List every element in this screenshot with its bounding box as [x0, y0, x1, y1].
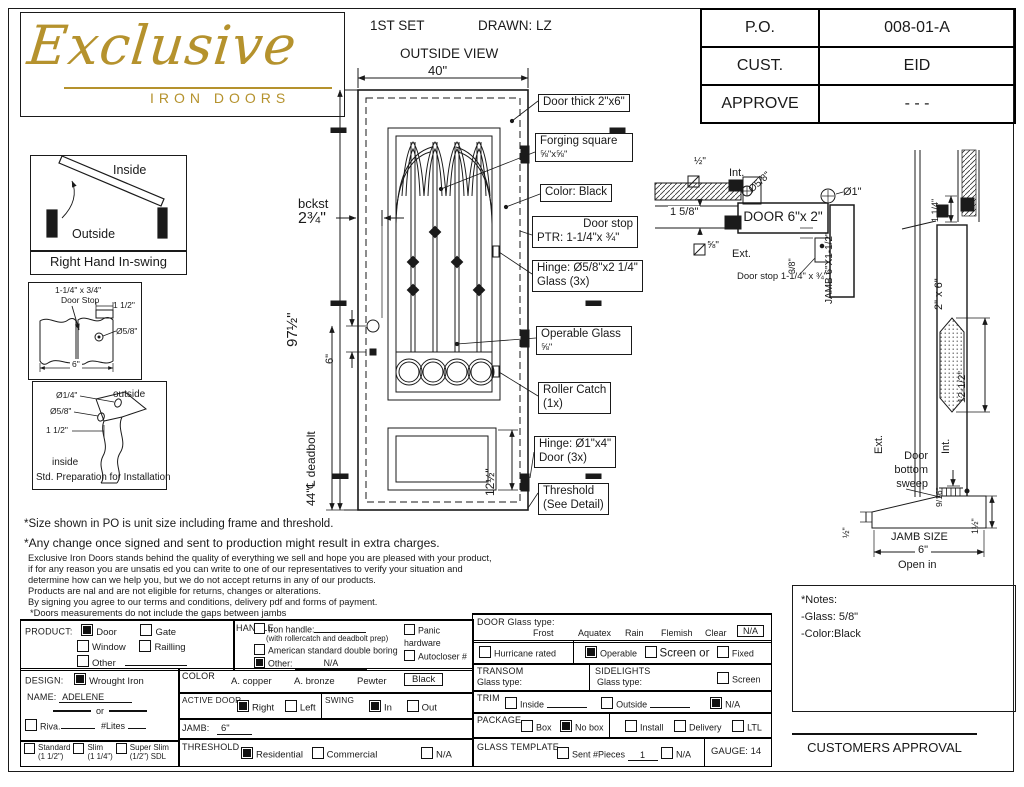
- package-delivery-label: Delivery: [689, 723, 722, 733]
- autocloser-label: Autocloser #: [418, 652, 467, 662]
- plan-five8-dim: ⅝": [707, 240, 719, 251]
- view-label: OUTSIDE VIEW: [400, 46, 498, 61]
- logo-underline: [64, 87, 332, 89]
- knob-gap-dim: 6": [324, 354, 336, 364]
- swing-caption: Right Hand In-swing: [30, 250, 187, 275]
- callout-color-text: Color: Black: [545, 186, 607, 198]
- slim-sub: (1 1/4"): [87, 752, 112, 761]
- panel-dim: 12½": [483, 468, 497, 496]
- trim-inside-label: Inside: [520, 700, 544, 710]
- design-cell: DESIGN: Wrought Iron NAME: ADELENE or Ri…: [20, 668, 180, 742]
- deadbolt-dim: 44"℄ deadbolt: [304, 431, 318, 506]
- product-railling-label: Railling: [154, 642, 185, 653]
- active-door-label: ACTIVE DOOR: [182, 695, 241, 705]
- screen-or-checkbox[interactable]: [645, 646, 657, 658]
- product-cell: PRODUCT: Door Gate Window Railling Other: [20, 619, 235, 671]
- vs-leaf-label: 2" x 6": [933, 278, 945, 310]
- super-slim-checkbox[interactable]: [116, 743, 127, 754]
- active-right-checkbox[interactable]: [237, 700, 249, 712]
- doorstop-callout-2: Door Stop: [61, 295, 99, 305]
- package-ltl-label: LTL: [747, 723, 762, 733]
- threshold-residential-label: Residential: [256, 750, 303, 761]
- cust-value: EID: [819, 47, 1015, 85]
- standard-label: Standard: [38, 743, 70, 752]
- lites-label: #Lites: [101, 721, 125, 731]
- backset-dim: 2¾": [298, 210, 326, 228]
- door-height-dim: 97½": [284, 312, 301, 347]
- active-left-checkbox[interactable]: [285, 700, 297, 712]
- product-gate-checkbox[interactable]: [140, 624, 152, 636]
- color-cell: COLOR A. copper A. bronze Pewter Black: [178, 668, 474, 694]
- sidelights-screen-checkbox[interactable]: [717, 672, 729, 684]
- design-name-label: NAME:: [27, 692, 57, 702]
- package-ltl-checkbox[interactable]: [732, 720, 744, 732]
- callout-threshold: Threshold (See Detail): [538, 483, 609, 515]
- callout-threshold-line1: Threshold: [543, 485, 604, 499]
- product-door-checkbox[interactable]: [81, 624, 93, 636]
- callout-forging-line1: Forging square: [540, 135, 628, 149]
- package-install-checkbox[interactable]: [625, 720, 637, 732]
- vs-sweep-line3: sweep: [858, 478, 928, 492]
- color-opt-bronze[interactable]: A. bronze: [294, 676, 335, 687]
- callout-roller: Roller Catch (1x): [538, 382, 611, 414]
- plan-wall-dim: 1 5/8": [668, 206, 700, 218]
- package-nobox-checkbox[interactable]: [560, 720, 572, 732]
- disclaimer-body-1: Exclusive Iron Doors stands behind the q…: [28, 553, 492, 563]
- or-divider-left: [53, 710, 91, 712]
- package-install-label: Install: [640, 723, 664, 733]
- product-other-checkbox[interactable]: [77, 655, 89, 667]
- package-box-checkbox[interactable]: [521, 720, 533, 732]
- callout-forging-line2: ⅝"x⅝": [540, 149, 628, 160]
- threshold-commercial-label: Commercial: [327, 750, 378, 761]
- swing-outside-label: Outside: [72, 227, 115, 241]
- riva-label: Riva.: [40, 721, 61, 731]
- trim-inside-blank[interactable]: [547, 699, 587, 708]
- callout-forging: Forging square ⅝"x⅝": [535, 133, 633, 162]
- transom-label: TRANSOM: [477, 666, 523, 676]
- callout-doorstop-line1: Door stop: [537, 218, 633, 232]
- trim-na-label: N/A: [725, 700, 740, 710]
- plan-int-label: Int.: [729, 167, 744, 179]
- autocloser-checkbox[interactable]: [404, 650, 415, 661]
- product-label: PRODUCT:: [25, 627, 73, 637]
- iron-handle-checkbox[interactable]: [254, 623, 265, 634]
- package-label: PACKAGE: [477, 715, 521, 725]
- package-cell: PACKAGE Box No box Install Delivery LTL: [472, 712, 772, 739]
- handle-other-checkbox[interactable]: [254, 657, 265, 668]
- callout-hinge-door-line2: Door (3x): [539, 452, 611, 466]
- plan-knob-dia: Ø1": [843, 186, 862, 198]
- panic-checkbox[interactable]: [404, 624, 415, 635]
- standard-checkbox[interactable]: [24, 743, 35, 754]
- disclaimer-line-2: *Any change once signed and sent to prod…: [24, 536, 440, 550]
- threshold-cell: THRESHOLD Residential Commercial N/A: [178, 738, 474, 767]
- approve-value: - - -: [819, 85, 1015, 123]
- iron-handle-label: Iron handle:: [268, 625, 314, 635]
- logo-script: Exclusive: [25, 14, 300, 77]
- trim-inside-checkbox[interactable]: [505, 697, 517, 709]
- american-boring-label: American standard double boring: [268, 645, 398, 655]
- jamb-value[interactable]: 6": [217, 723, 252, 735]
- package-delivery-checkbox[interactable]: [674, 720, 686, 732]
- swing-out-checkbox[interactable]: [407, 700, 419, 712]
- notes-glass: -Glass: 5/8": [801, 609, 1007, 626]
- trim-outside-label: Outside: [616, 700, 647, 710]
- trim-outside-checkbox[interactable]: [601, 697, 613, 709]
- disclaimer-line-1: *Size shown in PO is unit size including…: [24, 518, 333, 530]
- plan-jamb-label: JAMB 6"X1-1/2": [824, 232, 835, 304]
- design-wrought-label: Wrought Iron: [89, 676, 144, 687]
- template-sent-label: Sent #Pieces: [572, 750, 625, 760]
- trim-cell: TRIM Inside Outside N/A: [472, 690, 772, 714]
- callout-door-thick-text: Door thick 2"x6": [543, 96, 625, 108]
- callout-hinge-door: Hinge: Ø1"x4" Door (3x): [534, 436, 616, 468]
- package-box-label: Box: [536, 723, 552, 733]
- threshold-na-checkbox[interactable]: [421, 747, 433, 759]
- doorstop-base-dim: 6": [70, 359, 82, 369]
- template-na-checkbox[interactable]: [661, 747, 673, 759]
- color-opt-copper[interactable]: A. copper: [231, 676, 272, 687]
- product-door-label: Door: [96, 627, 117, 638]
- vs-sweep-dim: 9/16": [934, 487, 944, 507]
- vs-sweep-line2: bottom: [858, 464, 928, 478]
- notes-title: *Notes:: [801, 592, 1007, 609]
- prep-inside-label: inside: [52, 457, 78, 468]
- door-width-dim: 40": [428, 63, 447, 78]
- american-boring-checkbox[interactable]: [254, 644, 265, 655]
- trim-outside-blank[interactable]: [650, 699, 690, 708]
- vs-jamb-size-value: 6": [915, 544, 931, 556]
- jamb-cell: JAMB: 6": [178, 718, 474, 740]
- prep-offset-dim: 1 1/2": [46, 425, 68, 435]
- glass-opt-frost[interactable]: Frost: [533, 628, 554, 638]
- glass-template-cell: GLASS TEMPLATE Sent #Pieces 1 N/A GAUGE:…: [472, 737, 772, 767]
- sidelights-screen-label: Screen: [732, 675, 761, 685]
- disclaimer-body-4: Products are nal and are not eligible fo…: [28, 586, 321, 596]
- super-slim-sub: (1/2") SDL: [130, 752, 166, 761]
- trim-label: TRIM: [477, 693, 500, 703]
- callout-hinge-door-line1: Hinge: Ø1"x4": [539, 438, 611, 452]
- package-nobox-label: No box: [575, 723, 604, 733]
- swing-in-checkbox[interactable]: [369, 700, 381, 712]
- logo-tagline: IRON DOORS: [150, 90, 290, 106]
- cust-label: CUST.: [701, 47, 819, 85]
- handle-cell: HANDLE Iron handle: (with rollercatch an…: [233, 619, 474, 671]
- vs-open-label: Open in: [898, 559, 937, 571]
- fixed-label: Fixed: [732, 649, 754, 659]
- po-table: P.O. 008-01-A CUST. EID APPROVE - - -: [700, 8, 1016, 124]
- callout-hinge-glass-line2: Glass (3x): [537, 276, 638, 290]
- threshold-commercial-checkbox[interactable]: [312, 747, 324, 759]
- glass-template-label: GLASS TEMPLATE: [477, 742, 559, 752]
- swing-label: SWING: [325, 695, 354, 705]
- design-wrought-checkbox[interactable]: [74, 673, 86, 685]
- spec-sheet: Exclusive IRON DOORS 1ST SET DRAWN: LZ O…: [0, 0, 1024, 787]
- doorstop-callout-1: 1-1/4" x 3/4": [55, 285, 101, 295]
- notes-color: -Color:Black: [801, 626, 1007, 643]
- prep-caption: Std. Preparation for Installation: [36, 472, 171, 483]
- slim-label: Slim: [87, 743, 103, 752]
- disclaimer-body-2: if for any reason you are unsatis ed you…: [28, 564, 463, 574]
- swing-out-label: Out: [422, 703, 437, 714]
- callout-color: Color: Black: [540, 184, 612, 202]
- approval-signature-line[interactable]: [792, 733, 977, 735]
- approve-label: APPROVE: [701, 85, 819, 123]
- color-opt-pewter[interactable]: Pewter: [357, 676, 387, 687]
- glass-mode-cell: Hurricane rated Operable Screen or Fixed: [472, 640, 772, 665]
- plan-half-dim: ½": [694, 156, 706, 167]
- color-selected[interactable]: Black: [404, 673, 443, 686]
- doorstop-width-dim: 1 1/2": [113, 300, 135, 310]
- callout-roller-line2: (1x): [543, 398, 606, 412]
- active-left-label: Left: [300, 703, 316, 714]
- glass-opt-aquatex[interactable]: Aquatex: [578, 628, 611, 638]
- callout-doorstop-line2: PTR: 1-1/4"x ¾": [537, 232, 633, 246]
- vs-sweep-line1: Door: [858, 450, 928, 464]
- riva-blank[interactable]: [61, 720, 95, 729]
- plan-ext-label: Ext.: [732, 248, 751, 260]
- backset-label: bckst: [298, 196, 328, 211]
- iron-handle-note: (with rollercatch and deadbolt prep): [266, 635, 399, 644]
- transom-sidelights-cell: TRANSOM Glass type: SIDELIGHTS Glass typ…: [472, 663, 772, 692]
- callout-threshold-line2: (See Detail): [543, 499, 604, 513]
- plan-stop-note: Door stop 1-1/4" x ¾": [737, 271, 827, 282]
- standard-sub: (1 1/2"): [38, 752, 63, 761]
- vs-jamb-size-label: JAMB SIZE: [891, 531, 948, 543]
- product-window-label: Window: [92, 642, 126, 653]
- glass-type-label: DOOR Glass type:: [477, 617, 555, 627]
- super-slim-label: Super Slim: [130, 743, 169, 752]
- product-window-checkbox[interactable]: [77, 640, 89, 652]
- doorstop-hole-dim: Ø5/8": [116, 326, 137, 336]
- callout-doorstop: Door stop PTR: 1-1/4"x ¾": [532, 216, 638, 248]
- screen-or-label: Screen or: [660, 648, 710, 660]
- glass-selected[interactable]: N/A: [737, 625, 764, 637]
- prep-hole-small: Ø1/4": [56, 390, 77, 400]
- glass-opt-rain[interactable]: Rain: [625, 628, 644, 638]
- notes-box: *Notes: -Glass: 5/8" -Color:Black: [792, 585, 1016, 712]
- trim-na-checkbox[interactable]: [710, 697, 722, 709]
- swing-in-label: In: [384, 703, 392, 714]
- or-divider-right: [109, 710, 147, 712]
- design-label: DESIGN:: [25, 676, 63, 686]
- threshold-label: THRESHOLD: [182, 742, 239, 752]
- sidelights-label: SIDELIGHTS: [595, 666, 651, 676]
- plan-door-label: DOOR 6"x 2": [738, 209, 828, 224]
- glass-opt-flemish[interactable]: Flemish: [661, 628, 693, 638]
- iron-handle-blank[interactable]: [314, 624, 366, 633]
- product-other-label: Other: [92, 658, 116, 669]
- po-value: 008-01-A: [819, 9, 1015, 47]
- or-label: or: [96, 706, 104, 716]
- prep-hole-large: Ø5/8": [50, 406, 71, 416]
- set-label: 1ST SET: [370, 18, 425, 33]
- glass-opt-clear[interactable]: Clear: [705, 628, 727, 638]
- callout-roller-line1: Roller Catch: [543, 384, 606, 398]
- disclaimer-body-6: *Doors measurements do not include the g…: [30, 608, 286, 618]
- glass-type-cell: DOOR Glass type: Frost Aquatex Rain Flem…: [472, 613, 772, 643]
- disclaimer-body-5: By signing you agree to our terms and co…: [28, 597, 377, 607]
- threshold-na-label: N/A: [436, 750, 452, 761]
- callout-operable: Operable Glass ⅝": [536, 326, 632, 355]
- product-railling-checkbox[interactable]: [139, 640, 151, 652]
- transom-glass-label: Glass type:: [477, 677, 522, 687]
- callout-operable-line2: ⅝": [541, 342, 627, 353]
- design-name-value[interactable]: ADELENE: [59, 692, 132, 703]
- handle-other-label: Other:: [268, 658, 292, 668]
- disclaimer-body-3: determine how can we help you, but we do…: [28, 575, 376, 585]
- swing-inside-label: Inside: [113, 163, 146, 177]
- fixed-checkbox[interactable]: [717, 646, 729, 658]
- vs-lip-dim: ½": [841, 527, 851, 538]
- vs-sweep-label: Door bottom sweep: [858, 450, 928, 491]
- active-right-label: Right: [252, 703, 274, 714]
- gauge-label: GAUGE: 14: [711, 746, 761, 757]
- color-label: COLOR: [182, 671, 215, 681]
- hurricane-label: Hurricane rated: [494, 649, 556, 659]
- jamb-label: JAMB:: [182, 723, 210, 733]
- callout-hinge-glass-line1: Hinge: Ø5/8"x2 1/4": [537, 262, 638, 276]
- riva-checkbox[interactable]: [25, 719, 37, 731]
- template-na-label: N/A: [676, 750, 691, 760]
- active-door-cell: ACTIVE DOOR Right Left SWING In Out: [178, 692, 474, 720]
- sidelights-glass-label: Glass type:: [597, 677, 642, 687]
- product-gate-label: Gate: [155, 627, 176, 638]
- vs-top-dim: 1 1/4": [930, 199, 940, 222]
- operable-checkbox[interactable]: [585, 646, 597, 658]
- template-sent-checkbox[interactable]: [557, 747, 569, 759]
- hurricane-checkbox[interactable]: [479, 646, 491, 658]
- callout-hinge-glass: Hinge: Ø5/8"x2 1/4" Glass (3x): [532, 260, 643, 292]
- vs-int-label: Int.: [940, 439, 952, 454]
- operable-label: Operable: [600, 649, 637, 659]
- callout-door-thick: Door thick 2"x6": [538, 94, 630, 112]
- template-pieces-value[interactable]: 1: [628, 750, 658, 761]
- approval-label: CUSTOMERS APPROVAL: [792, 740, 977, 755]
- threshold-residential-checkbox[interactable]: [241, 747, 253, 759]
- thickness-cell: Standard(1 1/2") Slim(1 1/4") Super Slim…: [20, 740, 180, 767]
- prep-outside-label: outside: [113, 389, 145, 400]
- vs-th-dim: 1½": [970, 518, 980, 534]
- po-label: P.O.: [701, 9, 819, 47]
- drawn-label: DRAWN: LZ: [478, 18, 552, 33]
- vs-glass-dim: 12-1/2": [957, 371, 968, 403]
- callout-operable-line1: Operable Glass: [541, 328, 627, 342]
- product-other-blank[interactable]: [125, 657, 187, 666]
- lites-blank[interactable]: [128, 720, 146, 729]
- slim-checkbox[interactable]: [73, 743, 84, 754]
